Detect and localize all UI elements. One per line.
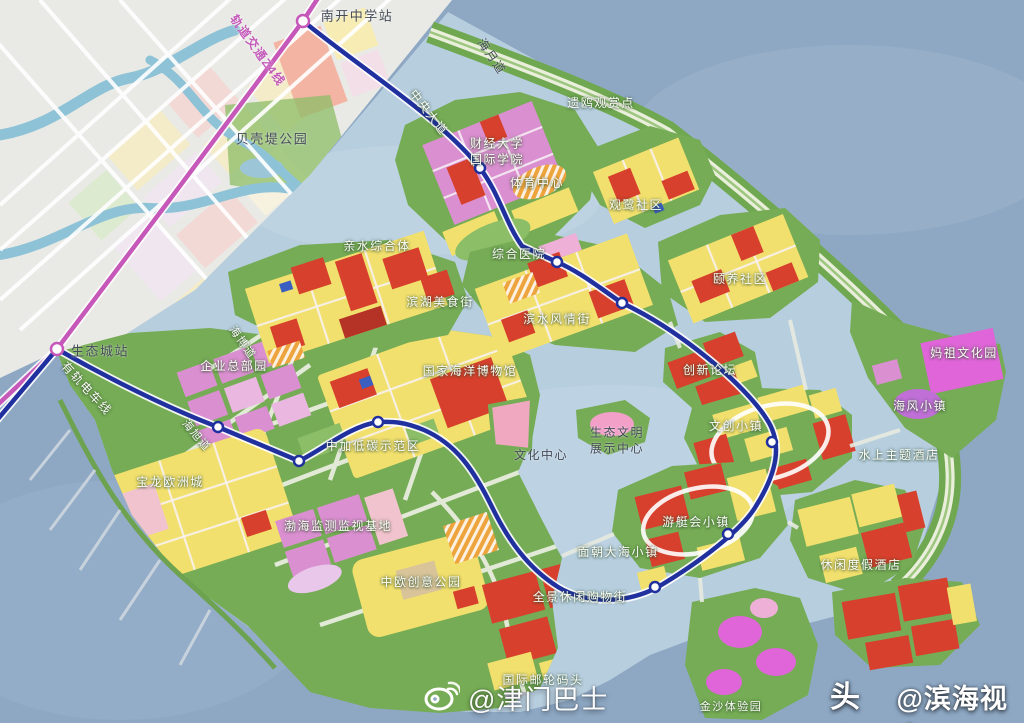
- station-marker: [51, 343, 63, 355]
- station-marker: [475, 163, 485, 173]
- station-marker: [213, 422, 223, 432]
- watermark-toutiao: 头条 @滨海视窗: [830, 672, 1024, 723]
- station-marker: [294, 456, 304, 466]
- station-marker: [723, 529, 733, 539]
- station-marker: [297, 15, 309, 27]
- watermark-weibo: @津门巴士: [424, 678, 608, 717]
- station-marker: [552, 257, 562, 267]
- watermark-brand: 头条: [830, 672, 889, 723]
- weibo-icon: [424, 679, 460, 716]
- station-marker: [617, 298, 627, 308]
- station-marker: [767, 437, 777, 447]
- station-marker: [650, 582, 660, 592]
- watermark-left-text: @津门巴士: [468, 678, 608, 717]
- station-marker: [373, 417, 383, 427]
- planning-map: 轨道交通Z4线南开中学站贝壳堤公园海月道中央大道遗鸥观赏点财经大学 国际学院体育…: [0, 0, 1024, 723]
- watermark-right-text: @滨海视窗: [897, 677, 1024, 723]
- map-canvas: [0, 0, 1024, 723]
